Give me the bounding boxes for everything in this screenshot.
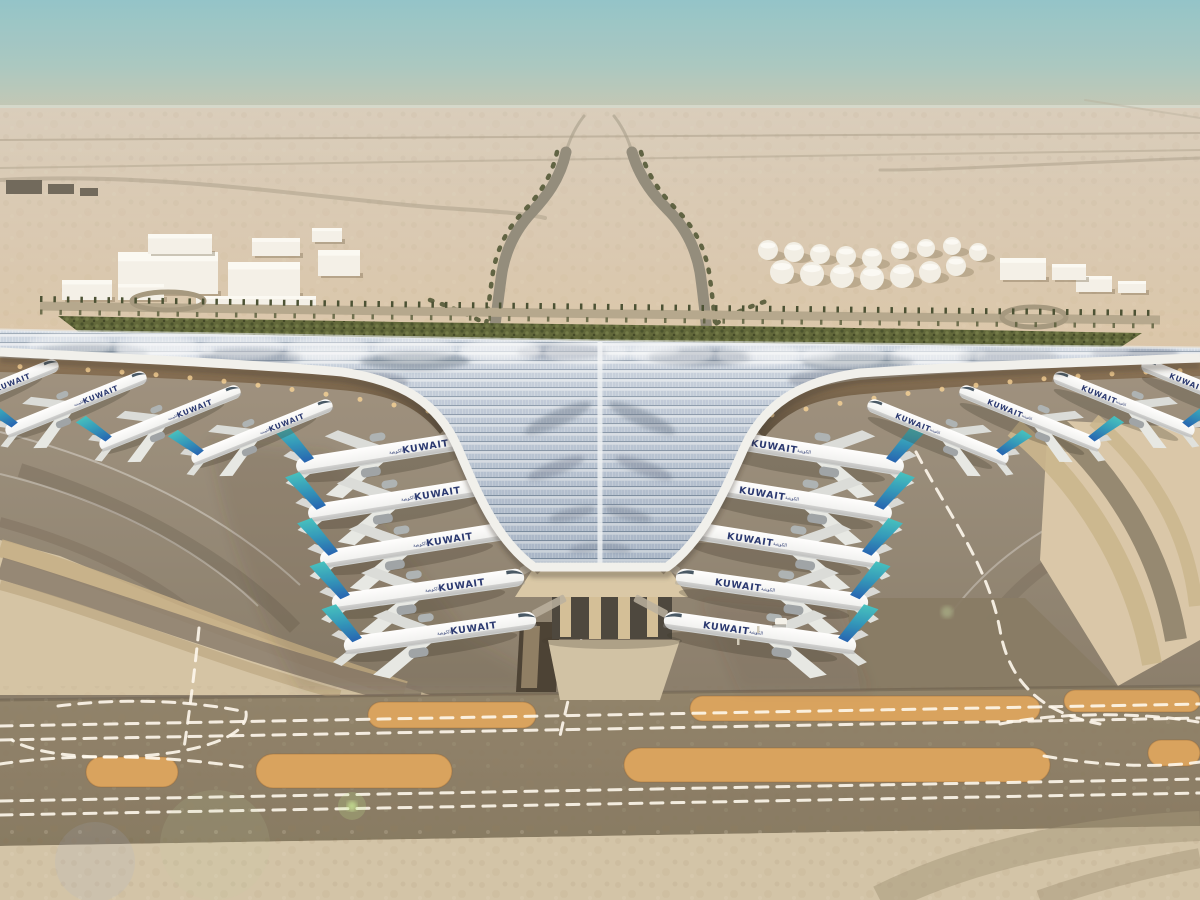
warm-overlay [0,0,1200,900]
airport-rendering-stage: KUWAITالكويتيةKUWAITالكويتيةKUWAITالكويت… [0,0,1200,900]
airport-aerial-rendering: KUWAITالكويتيةKUWAITالكويتيةKUWAITالكويت… [0,0,1200,900]
